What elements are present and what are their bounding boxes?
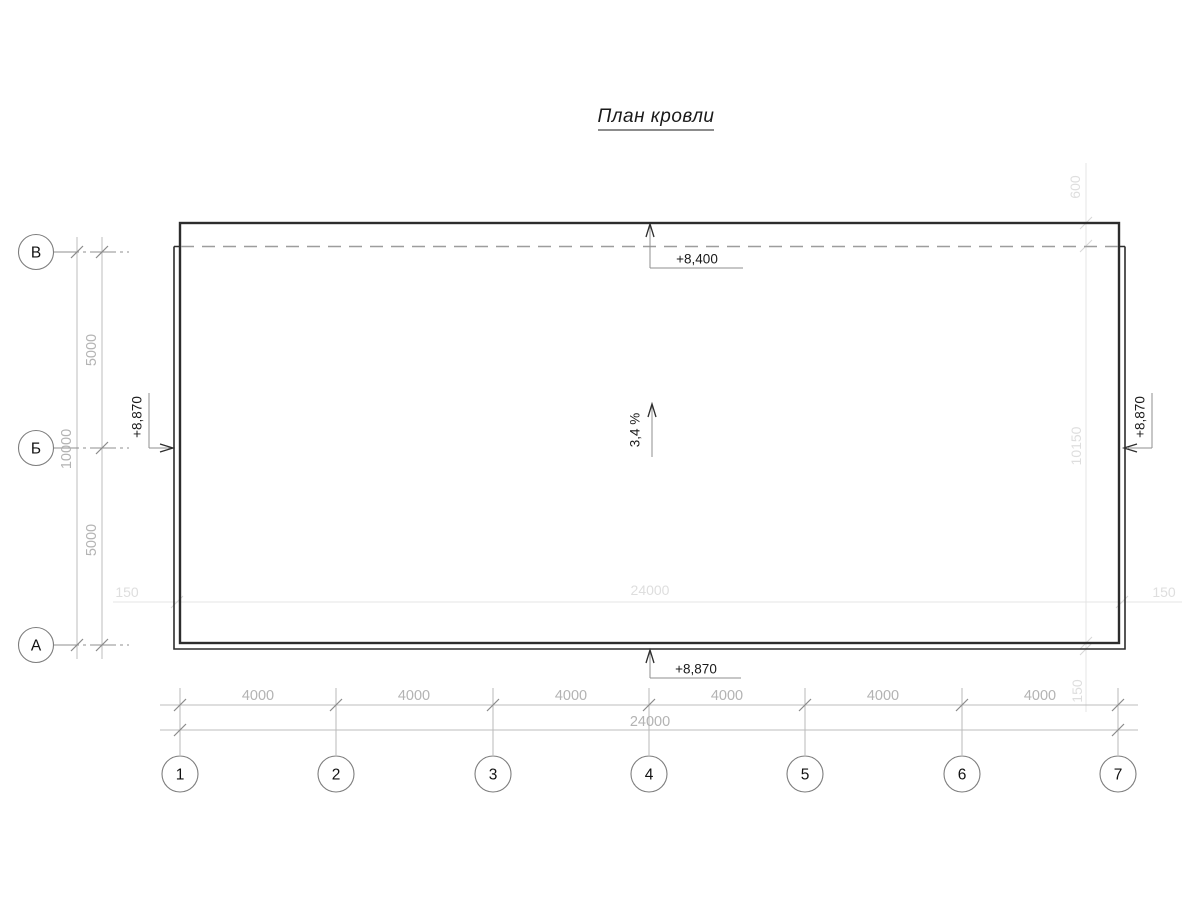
dim-bottom-total: 24000 xyxy=(630,714,670,730)
axis-label-col-5: 5 xyxy=(801,767,810,784)
slope-value: 3,4 % xyxy=(628,413,643,448)
column-axis-bubbles: 1 2 3 4 5 6 7 xyxy=(162,756,1136,792)
dim-overhang-left: 150 xyxy=(115,584,139,600)
dim-span-width: 24000 xyxy=(631,582,670,598)
faint-vertical-dimension: 600 10150 150 xyxy=(1067,163,1092,712)
dim-bay-3: 4000 xyxy=(555,688,587,704)
dim-top-offset: 600 xyxy=(1067,175,1083,199)
axis-label-col-1: 1 xyxy=(176,767,185,784)
elevation-bottom-value: +8,870 xyxy=(675,662,717,677)
slope-annotation: 3,4 % xyxy=(628,404,657,457)
dim-bay-4: 4000 xyxy=(711,688,743,704)
axis-label-col-4: 4 xyxy=(645,767,654,784)
dim-left-total: 10000 xyxy=(59,429,75,469)
elevation-mark-bottom: +8,870 xyxy=(646,650,741,678)
dim-bay-6: 4000 xyxy=(1024,688,1056,704)
drawing-title: План кровли xyxy=(598,106,715,127)
dim-bottom-overhang: 150 xyxy=(1069,679,1085,703)
elevation-top-value: +8,400 xyxy=(676,252,718,267)
axis-label-col-6: 6 xyxy=(958,767,967,784)
elevation-right-value: +8,870 xyxy=(1133,396,1148,438)
drawing-canvas: План кровли 150 24000 150 600 10150 150 … xyxy=(0,0,1200,900)
faint-horizontal-dimension: 150 24000 150 xyxy=(113,582,1182,608)
roof-main-outline xyxy=(180,223,1119,643)
row-axis-bubbles: В Б А xyxy=(19,235,54,663)
elevation-left-value: +8,870 xyxy=(130,396,145,438)
roof-plan-drawing: План кровли 150 24000 150 600 10150 150 … xyxy=(0,0,1200,900)
dim-span-height: 10150 xyxy=(1068,426,1084,465)
dim-bay-2: 4000 xyxy=(398,688,430,704)
dim-overhang-right: 150 xyxy=(1152,584,1176,600)
dim-left-segment-2: 5000 xyxy=(84,524,100,556)
bottom-dimension-block: 4000 4000 4000 4000 4000 4000 24000 xyxy=(160,688,1138,755)
dim-bay-5: 4000 xyxy=(867,688,899,704)
axis-label-row-b: Б xyxy=(31,441,41,458)
axis-label-col-3: 3 xyxy=(489,767,498,784)
axis-label-col-2: 2 xyxy=(332,767,341,784)
axis-label-row-v: В xyxy=(31,245,41,262)
axis-label-row-a: А xyxy=(31,638,42,655)
axis-label-col-7: 7 xyxy=(1114,767,1123,784)
dim-left-segment-1: 5000 xyxy=(84,334,100,366)
dim-bay-1: 4000 xyxy=(242,688,274,704)
elevation-mark-right: +8,870 xyxy=(1124,393,1152,452)
elevation-mark-left: +8,870 xyxy=(130,393,174,452)
